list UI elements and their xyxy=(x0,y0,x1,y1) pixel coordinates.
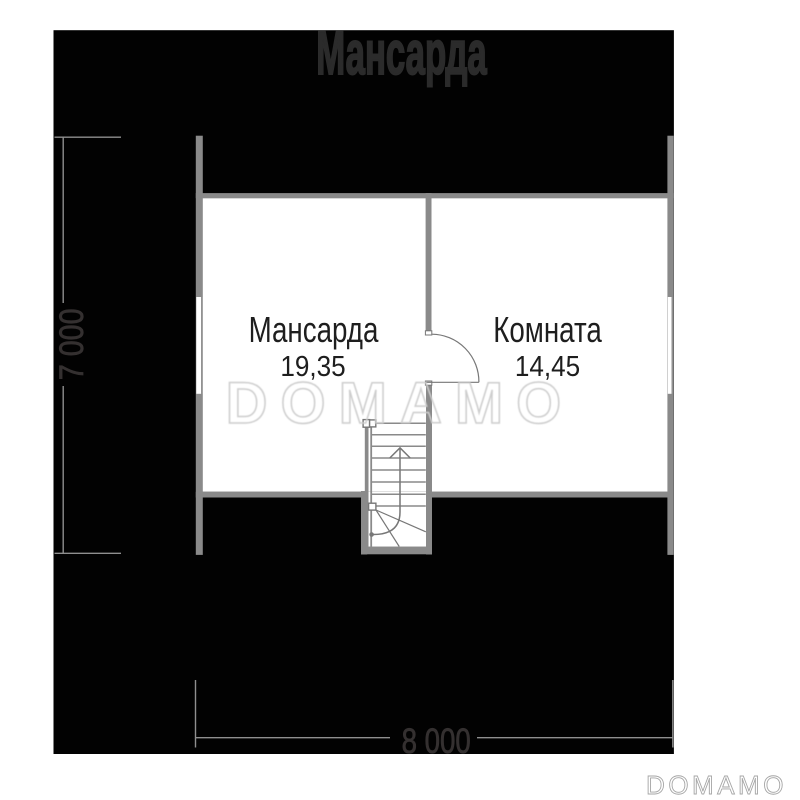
svg-text:Комната: Комната xyxy=(493,309,602,350)
svg-text:Мансарда: Мансарда xyxy=(249,309,380,350)
svg-text:14,45: 14,45 xyxy=(515,350,580,383)
svg-text:8 000: 8 000 xyxy=(402,721,471,761)
svg-text:7 000: 7 000 xyxy=(52,308,91,380)
svg-text:Мансарда: Мансарда xyxy=(316,18,487,87)
svg-text:19,35: 19,35 xyxy=(280,350,345,383)
svg-text:DOMAMO: DOMAMO xyxy=(646,770,787,800)
